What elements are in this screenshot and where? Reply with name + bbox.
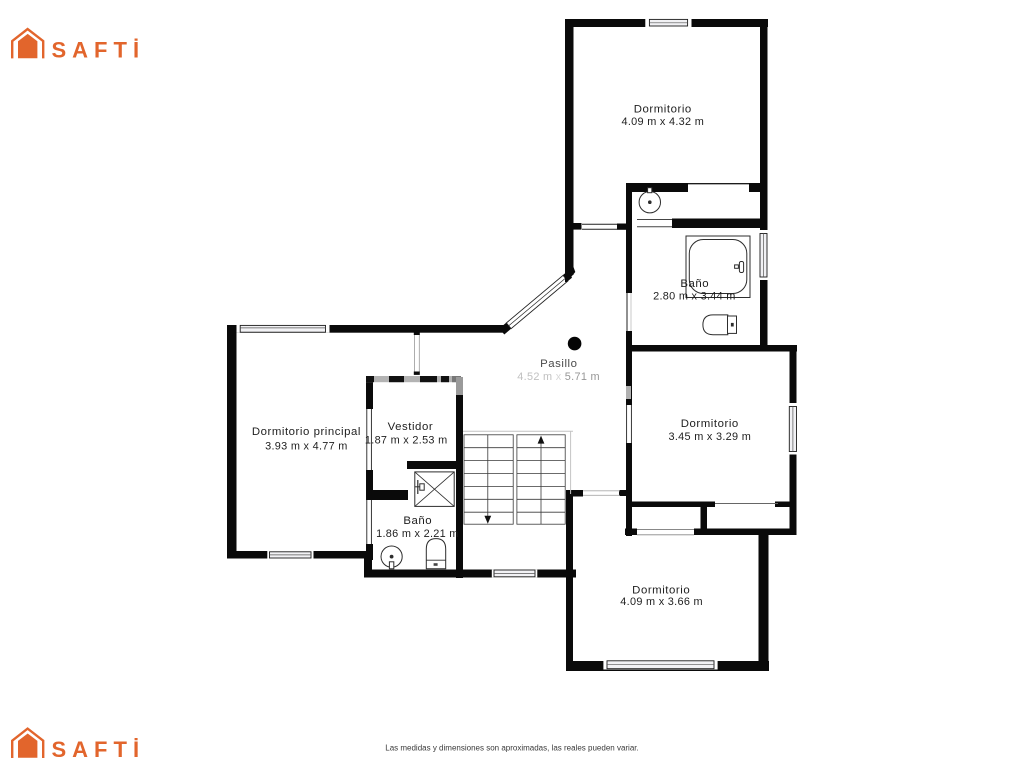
svg-text:SAFTİ: SAFTİ (52, 37, 146, 62)
svg-text:Baño: Baño (680, 278, 709, 290)
svg-text:Pasillo: Pasillo (540, 358, 577, 370)
svg-text:4.52 m x 5.71 m: 4.52 m x 5.71 m (517, 371, 600, 383)
svg-text:Vestidor: Vestidor (388, 421, 434, 433)
svg-text:4.09 m x 4.32 m: 4.09 m x 4.32 m (622, 116, 705, 128)
svg-text:3.45 m x 3.29 m: 3.45 m x 3.29 m (669, 431, 752, 443)
svg-text:1.87 m x 2.53 m: 1.87 m x 2.53 m (365, 435, 448, 447)
svg-text:1.86 m x 2.21 m: 1.86 m x 2.21 m (376, 528, 459, 540)
svg-text:2.80 m x 3.44 m: 2.80 m x 3.44 m (653, 291, 736, 303)
svg-text:4.09 m x 3.66 m: 4.09 m x 3.66 m (620, 596, 703, 608)
svg-text:Baño: Baño (403, 515, 432, 527)
svg-text:Dormitorio: Dormitorio (632, 585, 690, 597)
svg-text:3.93 m x 4.77 m: 3.93 m x 4.77 m (265, 440, 348, 452)
svg-text:Dormitorio: Dormitorio (634, 104, 692, 116)
svg-text:Dormitorio: Dormitorio (681, 418, 739, 430)
svg-text:Dormitorio principal: Dormitorio principal (252, 426, 361, 438)
svg-text:SAFTİ: SAFTİ (52, 737, 146, 762)
svg-text:Las medidas y dimensiones son: Las medidas y dimensiones son aproximada… (385, 743, 638, 752)
